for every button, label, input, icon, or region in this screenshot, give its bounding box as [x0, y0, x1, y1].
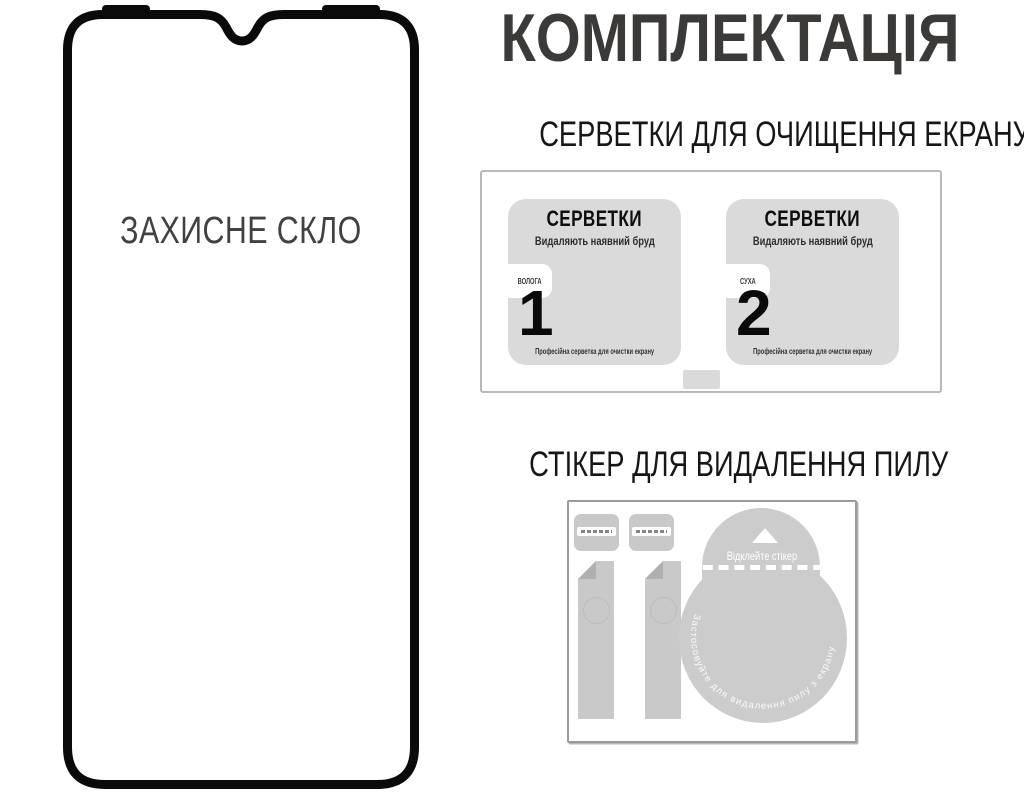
package-contents-infographic: ЗАХИСНЕ СКЛО КОМПЛЕКТАЦІЯ СЕРВЕТКИ ДЛЯ О… — [0, 0, 1024, 800]
folded-corner — [578, 561, 596, 579]
wipe-name: СЕРВЕТКИ — [726, 206, 899, 232]
arrow-up-icon — [752, 528, 778, 543]
folded-corner — [645, 561, 663, 579]
glass-outline — [63, 10, 419, 789]
wipe-footer: Професійна серветка для очистки екрану — [726, 341, 899, 359]
wipe-footer: Професійна серветка для очистки екрану — [508, 341, 681, 359]
wipe-subtitle: Видаляють наявний бруд — [508, 232, 681, 250]
sticker-strip-2 — [645, 561, 681, 719]
wipe-number: 1 — [518, 281, 554, 345]
die-cut-circle — [650, 597, 677, 624]
wipe-sachet-1: СЕРВЕТКИ Видаляють наявний бруд ВОЛОГА 1… — [508, 199, 681, 365]
wipes-section-header: СЕРВЕТКИ ДЛЯ ОЧИЩЕННЯ ЕКРАНУ — [470, 116, 950, 154]
mini-sticker-label-band — [577, 527, 616, 536]
wipes-illustration: СЕРВЕТКИ Видаляють наявний бруд ВОЛОГА 1… — [480, 170, 942, 393]
mini-sticker-label-band — [632, 527, 671, 536]
die-cut-circle — [583, 597, 610, 624]
wipe-sachet-2: СЕРВЕТКИ Видаляють наявний бруд СУХА 2 П… — [726, 199, 899, 365]
wipes-box-bottom-tab — [683, 370, 720, 389]
sticker-section-header: СТІКЕР ДЛЯ ВИДАЛЕННЯ ПИЛУ — [470, 446, 950, 484]
dust-sticker-illustration: Відклейте стікер Застосовуйте для видале… — [567, 500, 857, 743]
mini-sticker-2 — [629, 514, 674, 551]
wipe-name: СЕРВЕТКИ — [508, 206, 681, 232]
glass-label: ЗАХИСНЕ СКЛО — [63, 210, 419, 253]
curved-instruction: Застосовуйте для видалення пилу з екрану — [679, 553, 847, 723]
glass-label-text: ЗАХИСНЕ СКЛО — [120, 210, 361, 253]
wipe-subtitle: Видаляють наявний бруд — [726, 232, 899, 250]
screen-protector-illustration: ЗАХИСНЕ СКЛО — [63, 10, 419, 789]
mini-sticker-1 — [574, 514, 619, 551]
svg-text:Застосовуйте для видалення пил: Застосовуйте для видалення пилу з екрану — [688, 613, 837, 712]
wipe-number: 2 — [736, 281, 772, 345]
page-title: КОМПЛЕКТАЦІЯ — [460, 2, 972, 74]
sticker-strip-1 — [578, 561, 614, 719]
